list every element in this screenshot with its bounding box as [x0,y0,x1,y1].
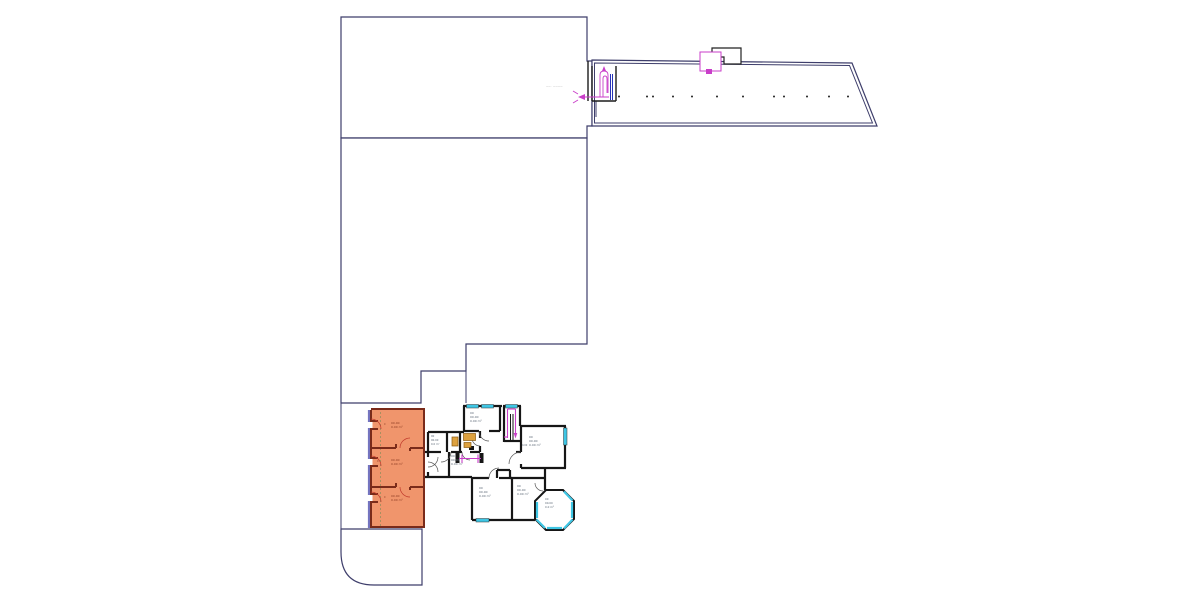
column-dot [672,96,674,98]
room-label: —— · ———— [546,85,563,88]
building-outline [341,529,422,585]
column-dot [618,96,620,98]
room-label: 0.00 m² [451,462,464,466]
room-label: 0.0 m² [545,505,554,509]
room-label: 0.00 m² [391,462,404,466]
room-label: 0.00 m² [529,443,542,447]
door-swing [535,483,543,491]
sanitary-fixture [464,434,476,441]
room-label: 0.00 m² [391,425,404,429]
building-outline [341,138,587,403]
floor-plan-canvas: —— · ————0000.000.00 m²0000.000.00 m²000… [0,0,1200,600]
column-dot [828,96,830,98]
wall-opening [368,495,373,501]
column-dot [652,96,654,98]
door-arcs [428,431,543,491]
room-label: 0.00 m² [479,494,492,498]
column-dot [742,96,744,98]
wall-opening [368,422,373,428]
door-swing [509,452,521,464]
room-label: 00 [431,434,435,438]
building-outline [341,17,592,138]
column-dot [691,96,693,98]
window [476,519,489,523]
column-dot [716,96,718,98]
window [467,405,479,409]
column-dot [847,96,849,98]
room-label: 0.0 m² [431,442,440,446]
room-label: 0.00 m² [470,419,483,423]
garage-entry-mark [706,69,712,74]
flow-arrow [514,433,518,439]
sanitary-fixture [452,437,458,446]
fixtures [452,434,476,448]
room-label: 0.00 m² [517,492,530,496]
room-label: 00.00 [431,438,439,442]
wall-opening [368,459,373,465]
window [506,405,518,409]
garage-entry-magenta [700,52,721,71]
drawing-area: —— · ————0000.000.00 m²0000.000.00 m²000… [0,0,1200,600]
column-dot [783,96,785,98]
column-dot [806,96,808,98]
sanitary-fixture [464,443,471,448]
window [482,405,494,409]
room-label: 0.00 m² [391,498,404,502]
column-dot [773,96,775,98]
column-dot [646,96,648,98]
building-outline [592,60,877,126]
window [564,428,568,445]
room-label: 0.00 [522,444,528,447]
entry-mark [706,69,712,74]
entry-ramp-box [700,52,721,71]
